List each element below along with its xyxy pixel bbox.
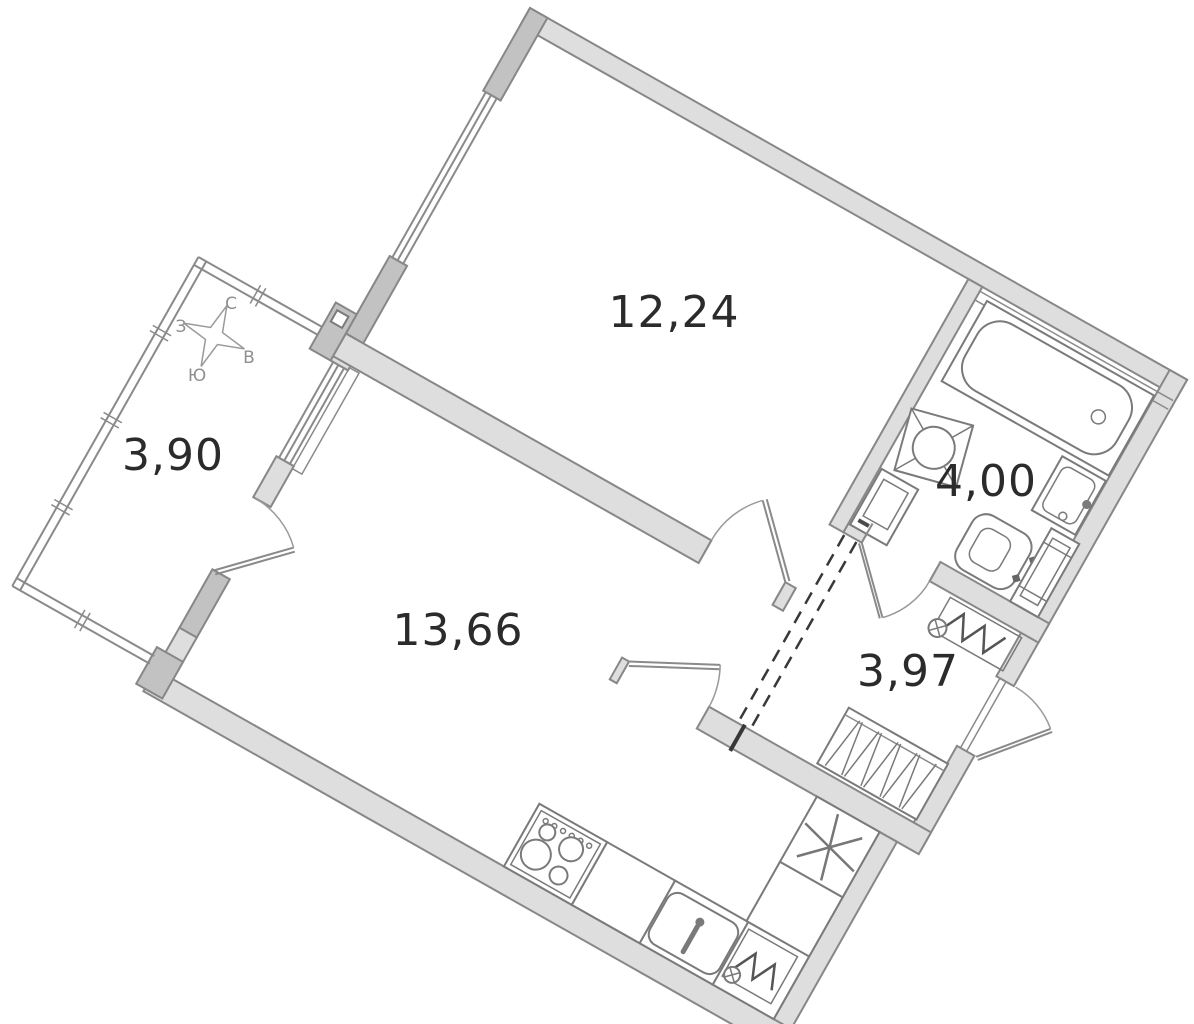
entrance-threshold — [960, 678, 1005, 751]
floor-plan-svg: С З В Ю 12,24 13,66 3,90 4,00 3,97 — [0, 0, 1194, 1024]
balcony-door-leaf — [213, 519, 297, 603]
wall-hall-south-jamb — [610, 658, 629, 684]
wall-top — [520, 8, 1187, 397]
living-door-leaf — [627, 625, 722, 706]
dashed-opening-lines — [739, 535, 857, 728]
room-label-bedroom: 12,24 — [609, 287, 740, 338]
bedroom-door-arc — [711, 488, 762, 553]
glazing-south — [12, 578, 154, 664]
compass-west: З — [176, 317, 187, 337]
glazing-west — [12, 257, 206, 590]
living-door-arc — [700, 665, 730, 707]
compass-south: Ю — [188, 366, 206, 386]
room-label-living-kitchen: 13,66 — [393, 605, 524, 656]
rotated-plan — [0, 0, 1194, 1024]
entrance-door-arc — [1006, 687, 1060, 729]
bedroom-window — [390, 91, 501, 266]
bedroom-door-jambs — [699, 540, 786, 604]
wall-west-5 — [179, 569, 229, 637]
floor-plan-page: С З В Ю 12,24 13,66 3,90 4,00 3,97 — [0, 0, 1194, 1024]
living-window — [276, 360, 348, 466]
room-label-hallway: 3,97 — [857, 646, 959, 697]
bedroom-door-leaf — [733, 498, 819, 584]
bathroom-door-arc — [883, 570, 930, 629]
bathroom-door-leaf — [832, 542, 910, 620]
wall-west-4 — [253, 456, 294, 507]
compass-rose: С З В Ю — [171, 293, 258, 386]
room-label-bathroom: 4,00 — [935, 456, 1037, 507]
compass-east: В — [243, 348, 255, 368]
wall-bedroom-south — [333, 334, 711, 563]
balcony-door-arc — [243, 498, 305, 547]
virtual-opening — [724, 535, 856, 754]
compass-north: С — [225, 294, 237, 314]
living-window-sill — [292, 368, 359, 474]
wall-bedroom-south-stub — [773, 582, 796, 611]
wall-west-1 — [483, 8, 547, 101]
wall-west-2 — [346, 256, 407, 343]
room-label-balcony: 3,90 — [122, 430, 224, 481]
